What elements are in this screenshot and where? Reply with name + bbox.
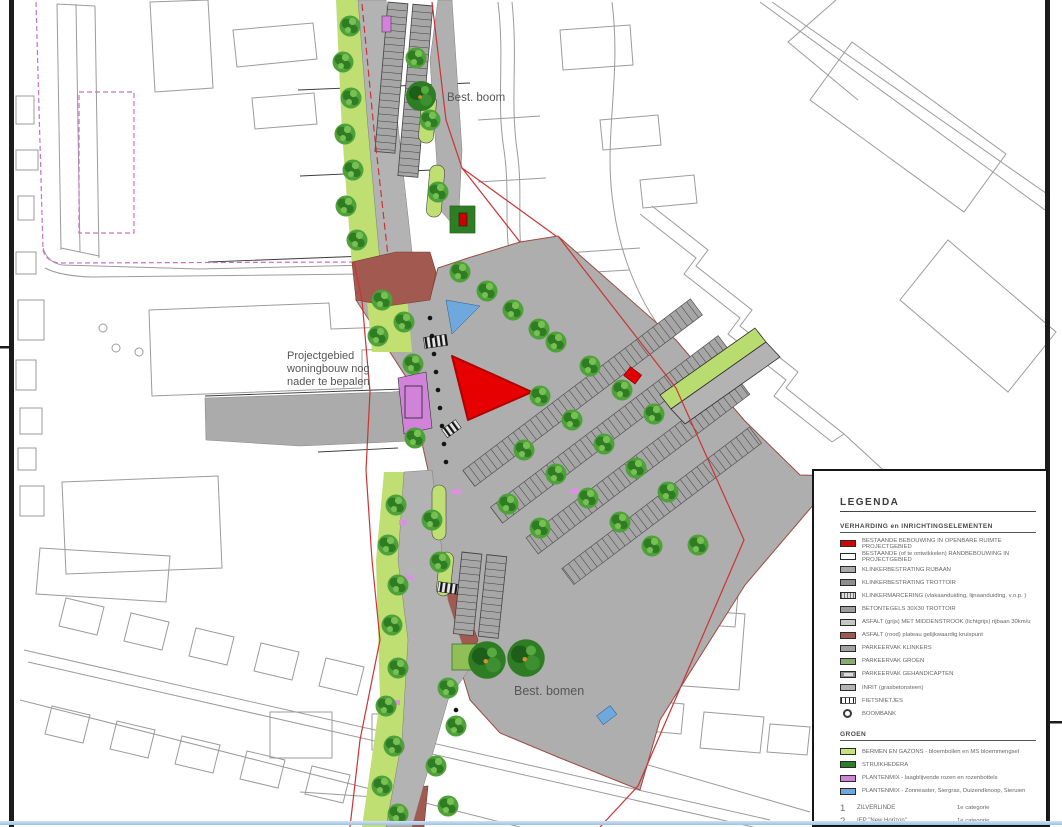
label-projectgebied-line1: Projectgebied: [287, 350, 370, 363]
viewport-bottom-edge: [0, 821, 1062, 825]
legend-swatch: [840, 788, 856, 795]
legend-swatch: [840, 645, 856, 652]
plantenmix-paars-north: [382, 16, 391, 32]
legend-section-heading-groen: GROEN: [840, 731, 1036, 741]
legend-item: ASFALT (grijs) MET MIDDENSTROOK (lichtgr…: [840, 616, 1038, 629]
label-projectgebied: Projectgebied woningbouw nog nader te be…: [287, 350, 370, 389]
label-projectgebied-line3: nader te bepalen: [287, 376, 370, 389]
legend-item-label: STRUIKHEDERA: [862, 762, 908, 768]
legend-panel: LEGENDA VERHARDING en INRICHTINGSELEMENT…: [812, 469, 1048, 827]
legend-swatch: [840, 579, 856, 586]
site-plan-viewport: Best. boom Projectgebied woningbouw nog …: [0, 0, 1062, 827]
legend-item: KLINKERBESTRATING RIJBAAN: [840, 563, 1038, 576]
legend-item: STRUIKHEDERA: [840, 758, 1038, 771]
legend-swatch: [840, 748, 856, 755]
legend-swatch: [840, 697, 856, 704]
legend-item: FIETSNIETJES: [840, 694, 1038, 707]
legend-item-label: PLANTENMIX - laagblijvende rozen en roze…: [862, 775, 998, 781]
tree-name: ZILVERLINDE: [857, 805, 957, 811]
legend-item-label: ASFALT (rood) plateau gelijkwaardig krui…: [862, 632, 983, 638]
legend-item-label: KLINKERMARCERING (vlakaanduiding, lijnaa…: [862, 593, 1026, 599]
legend-item-label: BESTAANDE BEBOUWING IN OPENBARE RUIMTE P…: [862, 538, 1038, 550]
legend-item: KLINKERBESTRATING TROTTOIR: [840, 576, 1038, 589]
legend-swatch: [840, 553, 856, 560]
legend-item-label: PARKEERVAK GROEN: [862, 658, 924, 664]
legend-tree-item: 1 ZILVERLINDE 1e categorie: [840, 802, 1038, 815]
legend-item-label: BETONTEGELS 30X30 TROTTOIR: [862, 606, 956, 612]
legend-item: PARKEERVAK GROEN: [840, 655, 1038, 668]
legend-item: PLANTENMIX - Zonneaster, Siergras, Duize…: [840, 785, 1038, 798]
legend-item: BERMEN EN GAZONS - bloembollen en MS blo…: [840, 745, 1038, 758]
cadastral-boundary-magenta: [36, 2, 368, 263]
label-projectgebied-line2: woningbouw nog: [287, 363, 370, 376]
label-best-boom: Best. boom: [447, 92, 505, 104]
legend-item: KLINKERMARCERING (vlakaanduiding, lijnaa…: [840, 589, 1038, 602]
legend-item: BOOMBANK: [840, 707, 1038, 720]
legend-item-label: PARKEERVAK GEHANDICAPTEN: [862, 671, 953, 677]
legend-swatch: [840, 592, 856, 599]
legend-item: BESTAANDE BEBOUWING IN OPENBARE RUIMTE P…: [840, 537, 1038, 550]
legend-swatch: [840, 761, 856, 768]
legend-item-label: KLINKERBESTRATING RIJBAAN: [862, 567, 951, 573]
legend-item: PLANTENMIX - laagblijvende rozen en roze…: [840, 772, 1038, 785]
legend-item-label: BOOMBANK: [862, 711, 896, 717]
legend-swatch: [843, 709, 852, 718]
legend-section-heading-verharding: VERHARDING en INRICHTINGSELEMENTEN: [840, 523, 1036, 533]
legend-item: BESTAANDE (of te ontwikkelen) RANDBEBOUW…: [840, 550, 1038, 563]
plantenmix-paars-west: [398, 372, 432, 434]
legend-item-label: FIETSNIETJES: [862, 698, 903, 704]
legend-item: INRIT (grasbetonsteen): [840, 681, 1038, 694]
legend-swatch: [840, 566, 856, 573]
legend-item: ASFALT (rood) plateau gelijkwaardig krui…: [840, 629, 1038, 642]
legend-swatch: [840, 684, 856, 691]
legend-swatch: [840, 606, 856, 613]
tree-category: 1e categorie: [957, 805, 989, 811]
legend-item-label: KLINKERBESTRATING TROTTOIR: [862, 580, 956, 586]
legend-item: BETONTEGELS 30X30 TROTTOIR: [840, 602, 1038, 615]
label-best-bomen: Best. bomen: [514, 684, 584, 698]
legend-swatch: [840, 775, 856, 782]
legend-item-label: INRIT (grasbetonsteen): [862, 685, 923, 691]
legend-items-verharding: BESTAANDE BEBOUWING IN OPENBARE RUIMTE P…: [840, 537, 1038, 720]
legend-swatch: [840, 658, 856, 665]
legend-swatch: [840, 632, 856, 639]
legend-item: PARKEERVAK GEHANDICAPTEN: [840, 668, 1038, 681]
legend-item: PARKEERVAK KLINKERS: [840, 642, 1038, 655]
existing-tree-best-boom: [406, 81, 436, 111]
legend-swatch: [840, 540, 856, 547]
legend-items-groen: BERMEN EN GAZONS - bloembollen en MS blo…: [840, 745, 1038, 797]
hedera-block: [450, 206, 475, 233]
legend-item-label: PARKEERVAK KLINKERS: [862, 645, 932, 651]
legend-title: LEGENDA: [840, 497, 1036, 512]
legend-item-label: BERMEN EN GAZONS - bloembollen en MS blo…: [862, 749, 1019, 755]
legend-item-label: BESTAANDE (of te ontwikkelen) RANDBEBOUW…: [862, 551, 1038, 563]
legend-swatch: [840, 619, 856, 626]
legend-item-label: PLANTENMIX - Zonneaster, Siergras, Duize…: [862, 788, 1025, 794]
side-street-west: [205, 388, 434, 446]
tree-number: 1: [840, 803, 857, 814]
legend-swatch: [840, 671, 856, 678]
legend-item-label: ASFALT (grijs) MET MIDDENSTROOK (lichtgr…: [862, 619, 1031, 625]
